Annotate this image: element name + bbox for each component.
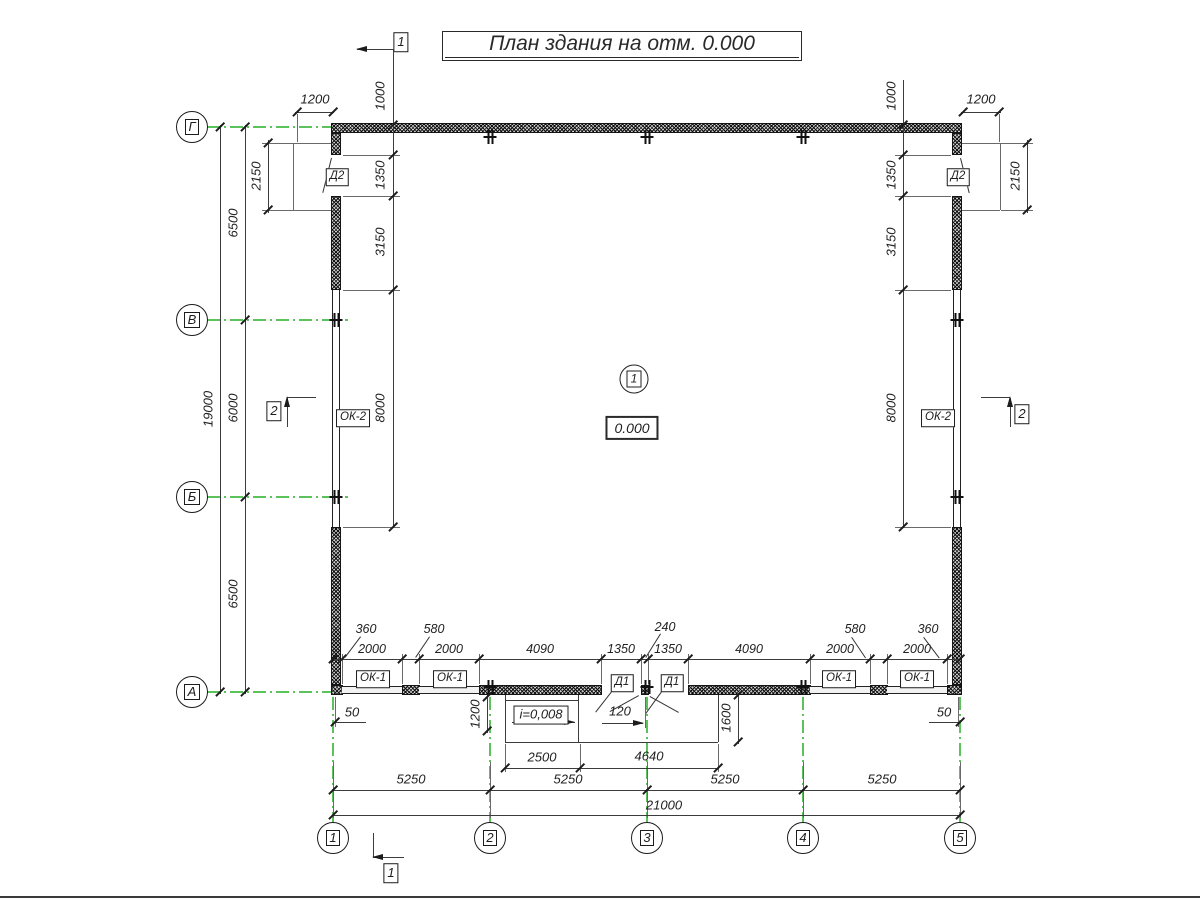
window-ok1-label-1: ОК-1 (356, 670, 390, 688)
ext-line (1001, 210, 1033, 211)
axis-label-a: А (184, 684, 200, 701)
section1-bottom-label: 1 (383, 863, 398, 883)
wall-bottom-pier-left (402, 685, 420, 695)
dim-pier-half: 120 (609, 705, 631, 718)
section2-left-label: 2 (266, 401, 281, 421)
wall-right-mid (952, 196, 962, 290)
door-d1-left-label: Д1 (611, 674, 634, 692)
dim-total-v: 19000 (202, 391, 215, 427)
dim-4090-2: 4090 (735, 643, 763, 656)
dim-line-door2h-left (268, 140, 269, 213)
ext-line (999, 114, 1000, 142)
axis-circle-5: 5 (944, 822, 976, 854)
dim-8000-left: 8000 (374, 394, 387, 423)
dim-door2-width-right: 1200 (967, 93, 996, 106)
dim-line-side-right (903, 80, 904, 528)
dim-porch-depth: 1600 (720, 704, 733, 733)
axis-circle-4: 4 (787, 822, 819, 854)
wall-left-upper (331, 133, 341, 155)
axis-circle-b: Б (176, 481, 208, 513)
wall-bottom-left (479, 685, 602, 695)
axis-label-v: В (184, 312, 200, 329)
dim-2000-4: 2000 (903, 643, 931, 656)
dim-ramp-width: 2500 (528, 751, 557, 764)
axis-label-g: Г (185, 119, 199, 136)
dim-3150-right: 3150 (885, 228, 898, 257)
dim-2000-3: 2000 (826, 643, 854, 656)
dim-pier-arrow (633, 720, 644, 726)
dim-2000-2: 2000 (435, 643, 463, 656)
column-mark (484, 130, 497, 144)
dim-door2-height-right: 2150 (1009, 162, 1022, 191)
axis-label-1: 1 (326, 830, 340, 847)
dim-line-total-h (332, 815, 961, 816)
column-mark (641, 130, 654, 144)
door-d1-right-leaf (649, 696, 678, 713)
door-d2-right-label: Д2 (947, 168, 970, 186)
porch-left-edge (293, 143, 294, 210)
dim-8000-right: 8000 (885, 394, 898, 423)
room-number-badge: 1 (620, 365, 649, 394)
dim-span-1: 5250 (397, 773, 426, 786)
dim-total-h: 21000 (646, 799, 682, 812)
dim-span-2: 5250 (554, 773, 583, 786)
axis-circle-g: Г (176, 111, 208, 143)
dim-door2-width-left: 1200 (301, 93, 330, 106)
floor-plan-drawing: План здания на отм. 0.000 (0, 0, 1200, 900)
axis-label-4: 4 (796, 830, 810, 847)
dim-1350-b1: 1350 (607, 643, 635, 656)
dim-v-seg-3: 6500 (227, 580, 240, 609)
ramp-inner-top (505, 700, 578, 701)
dim-580-right: 580 (845, 623, 866, 636)
drawing-title-box: План здания на отм. 0.000 (442, 31, 802, 61)
room-number: 1 (627, 371, 642, 387)
axis-circle-a: А (176, 676, 208, 708)
column-mark (951, 490, 964, 504)
section1-bottom-arrow (372, 854, 383, 860)
porch-right-bottom (962, 210, 1000, 211)
elevation-label: 0.000 (605, 416, 658, 440)
axis-label-2: 2 (483, 830, 497, 847)
wall-right-upper (952, 133, 962, 155)
ramp-inner-edge (578, 695, 579, 742)
door-d2-left-label: Д2 (326, 168, 349, 186)
dim-360-right: 360 (918, 623, 939, 636)
axis-circle-2: 2 (474, 822, 506, 854)
dim-gap50-right: 50 (937, 706, 951, 719)
dim-v-seg-2: 6000 (227, 394, 240, 423)
dim-line-ramp-width (504, 768, 719, 769)
column-mark (484, 680, 497, 694)
axis-line-a (207, 691, 348, 693)
column-mark (330, 313, 343, 327)
section1-top-label: 1 (393, 32, 408, 52)
window-ok1-label-2: ОК-1 (433, 670, 467, 688)
axis-line-g (207, 126, 348, 128)
window-ok1-label-4: ОК-1 (900, 670, 934, 688)
dim-1350-right: 1350 (885, 161, 898, 190)
section2-left-line (287, 397, 316, 398)
wall-bottom-pier-right (870, 685, 888, 695)
ext-line (297, 114, 298, 142)
dim-porch-width: 4640 (635, 750, 664, 763)
dim-3150-left: 3150 (374, 228, 387, 257)
dim-ramp-depth: 1200 (469, 700, 482, 729)
dim-line-v-segments (245, 125, 246, 694)
dim-240: 240 (655, 621, 676, 634)
ramp-left-edge (505, 695, 506, 742)
column-mark (951, 313, 964, 327)
axis-label-3: 3 (640, 830, 654, 847)
window-ok2-right-label: ОК-2 (921, 409, 955, 427)
porch-right-top (962, 143, 1000, 144)
axis-circle-1: 1 (317, 822, 349, 854)
wall-bottom-right (688, 685, 811, 695)
axis-circle-3: 3 (631, 822, 663, 854)
section2-right-line (981, 397, 1010, 398)
ext-line (1001, 143, 1033, 144)
axis-circle-v: В (176, 304, 208, 336)
window-ok1-label-3: ОК-1 (822, 670, 856, 688)
section1-top-arrow (356, 46, 367, 52)
dim-360-left: 360 (356, 623, 377, 636)
axis-line-b (207, 496, 348, 498)
door-d1-right-label: Д1 (661, 674, 684, 692)
dim-gap50-left: 50 (345, 706, 359, 719)
dim-1350-left: 1350 (374, 161, 387, 190)
dim-offset1000-right: 1000 (885, 82, 898, 111)
column-mark (797, 680, 810, 694)
dim-line-gap50-right (929, 722, 959, 723)
dim-1350-b2: 1350 (654, 643, 682, 656)
axis-line-v (207, 319, 348, 321)
dim-line-door2w-left (295, 112, 334, 113)
dim-offset1000-left: 1000 (374, 82, 387, 111)
section2-right-label: 2 (1014, 404, 1029, 424)
ramp-bottom-edge (505, 742, 718, 743)
dim-v-seg-1: 6500 (227, 209, 240, 238)
dim-2000-1: 2000 (358, 643, 386, 656)
axis-label-b: Б (184, 489, 199, 506)
wall-bottom-corner-right (947, 685, 962, 695)
porch-left-top (293, 143, 331, 144)
dim-door2-height-left: 2150 (250, 162, 263, 191)
axis-label-5: 5 (953, 830, 967, 847)
dim-line-porch-depth (738, 693, 739, 744)
wall-left-mid (331, 196, 341, 290)
porch-right-edge (1000, 143, 1001, 210)
dim-line-total-v (220, 125, 221, 694)
dim-line-door2h-right (1027, 140, 1028, 213)
column-mark (330, 490, 343, 504)
column-mark (641, 680, 654, 694)
column-mark (797, 130, 810, 144)
dim-580-left: 580 (424, 623, 445, 636)
section2-left-arrow (284, 396, 290, 407)
slope-label: i=0,008 (513, 706, 568, 725)
window-ok2-left-label: ОК-2 (336, 409, 370, 427)
porch-left-bottom (293, 210, 331, 211)
section2-right-arrow (1007, 396, 1013, 407)
sheet-edge (0, 896, 1200, 898)
dim-4090-1: 4090 (526, 643, 554, 656)
dim-span-3: 5250 (711, 773, 740, 786)
dim-span-4: 5250 (868, 773, 897, 786)
drawing-title: План здания на отм. 0.000 (445, 32, 799, 57)
ext-line (645, 697, 646, 728)
dim-line-gap50-left (336, 722, 366, 723)
